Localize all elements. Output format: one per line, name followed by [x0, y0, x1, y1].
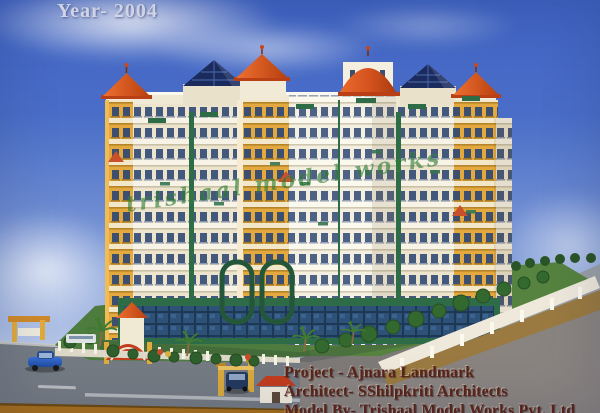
edge-highlight: [105, 100, 109, 340]
glass-pyramid-right: [400, 64, 456, 108]
glass-pyramid-left: [183, 60, 245, 106]
far-left-gate: [8, 316, 50, 342]
architectural-model-photo: trishaal model works Year- 2004 Project …: [0, 0, 600, 413]
credit-project: Project - Ajnara Landmark: [284, 363, 575, 382]
dark-car: [224, 372, 250, 394]
model-scene: [0, 0, 600, 413]
center-turret: [234, 45, 290, 104]
dome-tower: [338, 46, 400, 96]
right-mid-tower: [398, 106, 454, 330]
year-label: Year- 2004: [57, 0, 158, 23]
white-van: [66, 334, 96, 343]
credit-architect: Architect- SShilpkriti Architects: [284, 382, 575, 401]
green-strip: [396, 112, 401, 330]
credit-model-by: Model By- Trishaal Model Works Pvt. Ltd: [284, 401, 575, 413]
credits-block: Project - Ajnara Landmark Architect- SSh…: [284, 363, 575, 413]
